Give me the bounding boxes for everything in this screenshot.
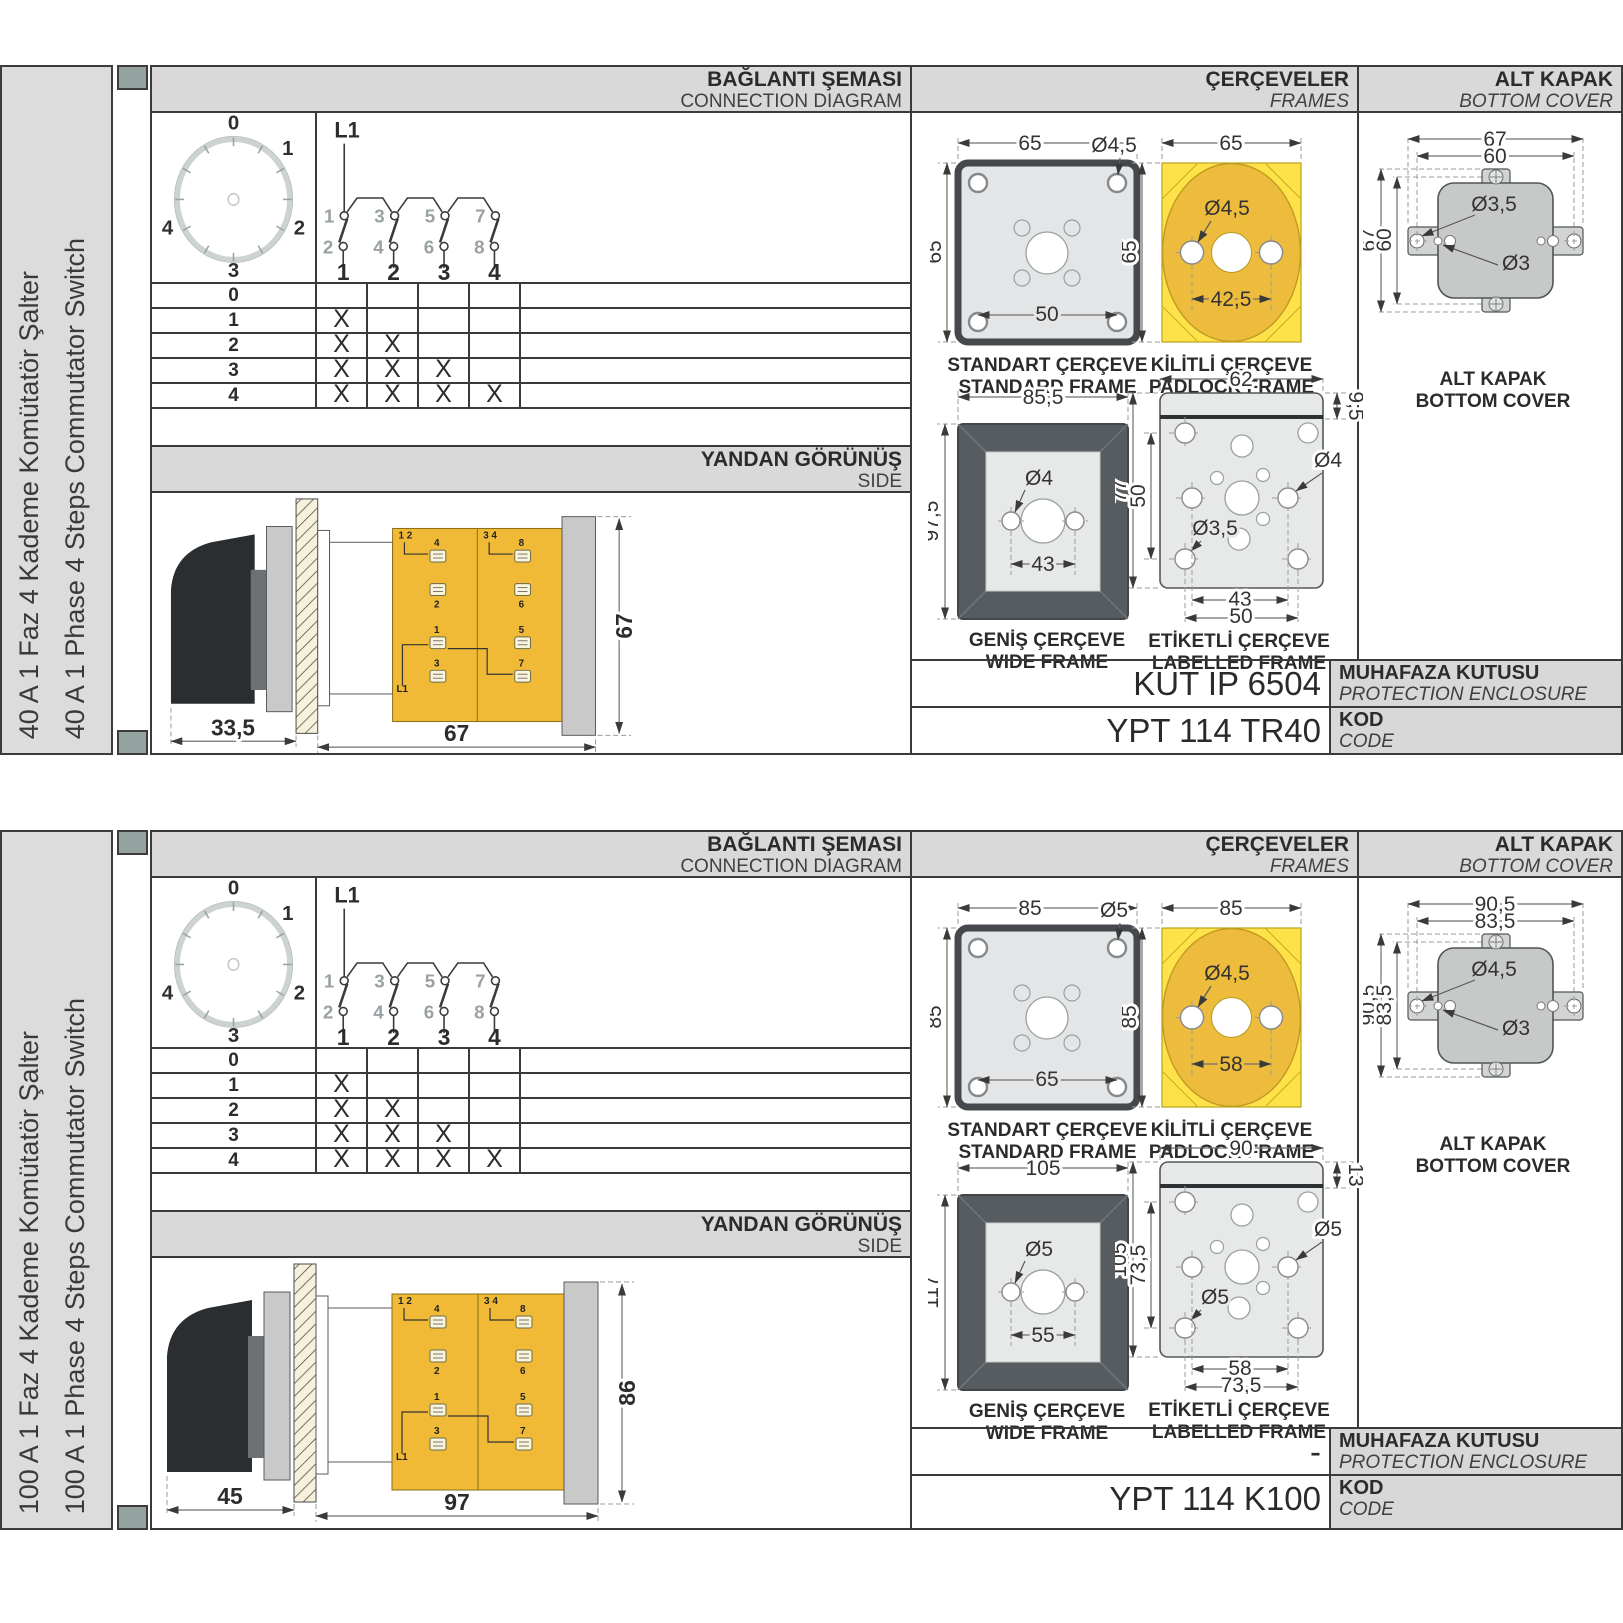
dial-pos-3: 3: [228, 260, 239, 282]
contact-top-3: 3: [374, 971, 384, 992]
line-label: L1: [334, 118, 359, 143]
output-2: 2: [387, 1024, 400, 1047]
dim-hole-spacing: 65: [1035, 1068, 1058, 1091]
dim-inner-height: 83,5: [1373, 985, 1396, 1026]
terminal-label: 4: [434, 538, 440, 549]
connection-column: BAĞLANTI ŞEMASI CONNECTION DIAGRAM: [152, 67, 912, 753]
dim-hole-dia: Ø5: [1025, 1238, 1053, 1261]
terminal-label: 3 4: [484, 1296, 498, 1307]
bottom-cover-svg: 67 60 67 60: [1363, 123, 1623, 363]
mark-cell: [419, 1049, 470, 1072]
dim-frame-width: 62: [1229, 368, 1252, 391]
dim-hole-dia-bottom: Ø3,5: [1192, 517, 1238, 540]
mark-cell: [368, 1074, 419, 1097]
connection-diagram: 0 1 2 3 4 L1: [152, 878, 910, 1049]
step-label: 4: [152, 1149, 317, 1172]
header-title-tr: YANDAN GÖRÜNÜŞ: [152, 1213, 902, 1236]
side-view-drawing: 1 2 3 4 4 8 2 6 1 5 3 7 L1 33,5: [152, 493, 910, 753]
mark-cell: X: [419, 1124, 470, 1147]
dim-hole-dia: Ø4: [1025, 467, 1053, 490]
mark-cell: [470, 1099, 521, 1122]
figure-caption-tr: ETİKETLİ ÇERÇEVE: [1115, 631, 1363, 652]
labelled-frame-svg: 90 13 105 73,5 Ø5 Ø5 58 73,5: [1115, 1132, 1363, 1394]
table-row: 0: [152, 284, 910, 309]
mark-cell: X: [368, 1099, 419, 1122]
terminal-label: 2: [434, 1366, 440, 1377]
bottom-cover-header: ALT KAPAK BOTTOM COVER: [1359, 67, 1621, 113]
step-label: 0: [152, 284, 317, 307]
step-label: 3: [152, 359, 317, 382]
contact-bottom-2: 2: [323, 236, 333, 257]
mark-cell: [419, 284, 470, 307]
mark-cell: X: [368, 359, 419, 382]
label-en: CODE: [1339, 1499, 1621, 1520]
header-title-en: SIDE: [152, 1236, 902, 1257]
spec-rows: - MUHAFAZA KUTUSU PROTECTION ENCLOSURE Y…: [912, 1427, 1621, 1528]
bottom-cover-figure: 90,5 83,5 90,5 83,5: [1363, 888, 1623, 1177]
dim-frame-height: 65: [1122, 240, 1141, 263]
dial-svg: 0 1 2 3 4: [152, 878, 315, 1047]
bottom-cover-column: ALT KAPAK BOTTOM COVER 67 60 67 60: [1359, 67, 1621, 667]
connection-column: BAĞLANTI ŞEMASI CONNECTION DIAGRAM: [152, 832, 912, 1528]
binding-marker-top: [117, 65, 148, 90]
step-label: 4: [152, 384, 317, 407]
mounting-panel-hatch: [296, 499, 318, 733]
dial-pos-0: 0: [228, 878, 239, 900]
figure-caption-tr: ETİKETLİ ÇERÇEVE: [1115, 1400, 1363, 1421]
mark-cell: [470, 1049, 521, 1072]
contact-top-5: 5: [425, 206, 435, 227]
mark-cell: [368, 309, 419, 332]
mounting-panel-hatch: [294, 1264, 316, 1502]
mark-cell: [470, 309, 521, 332]
step-label: 2: [152, 1099, 317, 1122]
header-title-tr: BAĞLANTI ŞEMASI: [152, 68, 902, 91]
enclosure-label: MUHAFAZA KUTUSU PROTECTION ENCLOSURE: [1329, 661, 1621, 706]
dim-frame-width: 85: [1219, 897, 1242, 920]
terminal-label: L1: [396, 1452, 408, 1463]
mark-cell: [368, 284, 419, 307]
dim-handle-depth: 45: [217, 1483, 243, 1509]
labelled-frame-figure: 62 9,5 77 50 Ø4 Ø3,5 43 50: [1115, 363, 1363, 674]
frames-column: ÇERÇEVELER FRAMES 65 Ø4,5: [912, 67, 1359, 667]
connection-diagram: 0 1 2 3 4 L1: [152, 113, 910, 284]
contact-top-3: 3: [374, 206, 384, 227]
header-title-en: CONNECTION DIAGRAM: [152, 856, 902, 877]
contact-top-7: 7: [475, 206, 485, 227]
dim-hole-spacing: 42,5: [1211, 288, 1252, 311]
binding-marker-bottom: [117, 730, 148, 755]
protection-enclosure-row: - MUHAFAZA KUTUSU PROTECTION ENCLOSURE: [912, 1427, 1621, 1474]
dim-spacing-outer: 73,5: [1221, 1374, 1262, 1394]
frames-header: ÇERÇEVELER FRAMES: [912, 67, 1357, 113]
dim-frame-height: 85: [1122, 1005, 1141, 1028]
mark-cell: [470, 284, 521, 307]
enclosure-label: MUHAFAZA KUTUSU PROTECTION ENCLOSURE: [1329, 1429, 1621, 1474]
header-title-en: BOTTOM COVER: [1359, 91, 1613, 112]
label-tr: KOD: [1339, 1477, 1621, 1499]
header-title-en: FRAMES: [912, 91, 1349, 112]
label-tr: MUHAFAZA KUTUSU: [1339, 1430, 1621, 1452]
label-tr: MUHAFAZA KUTUSU: [1339, 662, 1621, 684]
table-row: 2 X X: [152, 1099, 910, 1124]
product-side-label-strip: 100 A 1 Faz 4 Kademe Komütatör Şalter 10…: [0, 830, 113, 1530]
dim-hole-dia-bottom: Ø5: [1201, 1286, 1229, 1309]
dial-pos-2: 2: [294, 982, 305, 1004]
bottom-cover-column: ALT KAPAK BOTTOM COVER 90,5 83,5 90,5 83…: [1359, 832, 1621, 1435]
mark-cell: X: [317, 1124, 368, 1147]
terminal-label: 5: [520, 1392, 526, 1403]
frames-header: ÇERÇEVELER FRAMES: [912, 832, 1357, 878]
binding-marker-top: [117, 830, 148, 855]
dim-frame-width: 65: [1018, 132, 1041, 155]
code-row: YPT 114 TR40 KOD CODE: [912, 706, 1621, 753]
product-name-english: 40 A 1 Phase 4 Steps Commutator Switch: [60, 238, 91, 739]
dim-frame-width: 90: [1229, 1137, 1252, 1160]
terminal-label: 1 2: [399, 530, 413, 541]
terminal-label: 2: [434, 599, 440, 610]
dim-hole-spacing: 43: [1031, 553, 1054, 576]
product-name-english: 100 A 1 Phase 4 Steps Commutator Switch: [60, 998, 91, 1514]
dim-body-depth: 67: [444, 720, 469, 746]
mark-cell: X: [368, 334, 419, 357]
protection-enclosure-row: KUT IP 6504 MUHAFAZA KUTUSU PROTECTION E…: [912, 659, 1621, 706]
step-label: 1: [152, 309, 317, 332]
contact-schematic-drawing: L1 1 3 5 7 2 4: [317, 878, 910, 1047]
contact-schematic-drawing: L1 1 3 5 7 2 4: [317, 113, 910, 282]
header-title-en: CONNECTION DIAGRAM: [152, 91, 902, 112]
code-label: KOD CODE: [1329, 708, 1621, 753]
header-title-tr: YANDAN GÖRÜNÜŞ: [152, 448, 902, 471]
step-label: 2: [152, 334, 317, 357]
output-1: 1: [337, 259, 350, 282]
mark-cell: [470, 359, 521, 382]
mark-cell: X: [317, 359, 368, 382]
mark-cell: [470, 1124, 521, 1147]
dim-frame-height: 85: [930, 1005, 946, 1028]
mark-cell: X: [368, 1149, 419, 1172]
dim-small-hole-dia: Ø3: [1502, 252, 1530, 275]
switch-handle: [167, 1300, 252, 1472]
dim-hole-dia-right: Ø4: [1314, 449, 1342, 472]
side-view-svg: 1 2 3 4 4 8 2 6 1 5 3 7 L1 45: [152, 1258, 712, 1526]
switch-dial-drawing: 0 1 2 3 4: [152, 878, 317, 1047]
dim-frame-height: 117: [928, 1275, 943, 1308]
code-value: YPT 114 TR40: [912, 708, 1329, 753]
dim-frame-height: 97,5: [928, 501, 943, 542]
dim-hole-dia: Ø4,5: [1204, 197, 1250, 220]
header-title-en: SIDE: [152, 471, 902, 492]
datasheet-panel: BAĞLANTI ŞEMASI CONNECTION DIAGRAM: [150, 65, 1623, 755]
bottom-cover-figure: 67 60 67 60: [1363, 123, 1623, 412]
mark-cell: [419, 1099, 470, 1122]
output-3: 3: [438, 1024, 451, 1047]
table-row: 4 X X X X: [152, 384, 910, 409]
contact-bottom-2: 2: [323, 1001, 333, 1022]
dim-frame-height: 65: [930, 240, 946, 263]
mark-cell: X: [368, 1124, 419, 1147]
output-4: 4: [488, 259, 501, 282]
dim-small-hole-dia: Ø3: [1502, 1017, 1530, 1040]
dim-inner-height: 73,5: [1127, 1245, 1150, 1286]
contact-bottom-6: 6: [424, 236, 434, 257]
contact-bottom-8: 8: [474, 1001, 484, 1022]
mark-cell: [368, 1049, 419, 1072]
mark-cell: X: [317, 1149, 368, 1172]
dim-handle-depth: 33,5: [211, 714, 255, 740]
mark-cell: [419, 1074, 470, 1097]
product-name-turkish: 40 A 1 Faz 4 Kademe Komütatör Şalter: [14, 271, 45, 739]
terminal-label: 8: [519, 538, 525, 549]
side-view-svg: 1 2 3 4 4 8 2 6 1 5 3 7 L1 33,5: [152, 493, 712, 757]
padlock-frame-figure: Ø4,5 58 85 85 KİLİTLİ ÇERÇEVE PADLOCK FR…: [1122, 888, 1317, 1163]
contact-top-5: 5: [425, 971, 435, 992]
mark-cell: X: [419, 359, 470, 382]
code-row: YPT 114 K100 KOD CODE: [912, 1474, 1621, 1528]
header-title-tr: ÇERÇEVELER: [912, 68, 1349, 91]
dial-pos-0: 0: [228, 113, 239, 135]
table-row: 3 X X X: [152, 359, 910, 384]
contact-bottom-8: 8: [474, 236, 484, 257]
dim-inner-height: 50: [1127, 484, 1150, 507]
enclosure-value: KUT IP 6504: [912, 661, 1329, 706]
dim-inner-width: 60: [1483, 145, 1506, 168]
binding-marker-bottom: [117, 1505, 148, 1530]
terminal-label: 6: [519, 599, 525, 610]
mark-cell: [317, 1049, 368, 1072]
contact-bottom-4: 4: [373, 1001, 384, 1022]
header-title-tr: ÇERÇEVELER: [912, 833, 1349, 856]
dim-inner-width: 83,5: [1475, 910, 1516, 933]
mark-cell: X: [317, 1099, 368, 1122]
mark-cell: X: [419, 384, 470, 407]
contact-bottom-4: 4: [373, 236, 384, 257]
enclosure-value: -: [912, 1429, 1329, 1474]
header-title-tr: ALT KAPAK: [1359, 68, 1613, 91]
labelled-frame-svg: 62 9,5 77 50 Ø4 Ø3,5 43 50: [1115, 363, 1363, 625]
table-row: 2 X X: [152, 334, 910, 359]
dim-hole-spacing: 55: [1031, 1324, 1054, 1347]
output-2: 2: [387, 259, 400, 282]
dim-body-height: 67: [611, 613, 637, 638]
padlock-frame-svg: Ø4,5 58 85 85: [1122, 888, 1317, 1114]
table-row: 0: [152, 1049, 910, 1074]
side-view-drawing: 1 2 3 4 4 8 2 6 1 5 3 7 L1 45: [152, 1258, 910, 1528]
connection-diagram-header: BAĞLANTI ŞEMASI CONNECTION DIAGRAM: [152, 832, 910, 878]
product-section-40a: 40 A 1 Faz 4 Kademe Komütatör Şalter 40 …: [0, 65, 1623, 755]
dim-hole-dia-right: Ø5: [1314, 1218, 1342, 1241]
mark-cell: [419, 309, 470, 332]
mark-cell: [470, 334, 521, 357]
terminal-label: 3 4: [483, 530, 497, 541]
mark-cell: [470, 1074, 521, 1097]
dim-body-depth: 97: [444, 1489, 470, 1515]
terminal-label: 1: [434, 1392, 440, 1403]
terminal-label: 1: [434, 625, 440, 636]
schematic-svg: L1 1 3 5 7 2 4: [317, 878, 747, 1047]
terminal-label: 6: [520, 1366, 526, 1377]
terminal-label: 7: [520, 1426, 526, 1437]
dim-frame-width: 65: [1219, 132, 1242, 155]
mark-cell: X: [470, 384, 521, 407]
dim-frame-width: 85: [1018, 897, 1041, 920]
dial-pos-1: 1: [282, 903, 293, 925]
product-side-label-strip: 40 A 1 Faz 4 Kademe Komütatör Şalter 40 …: [0, 65, 113, 755]
dial-pos-1: 1: [282, 138, 293, 160]
dim-tab-hole-dia: Ø4,5: [1471, 958, 1517, 981]
dim-hole-dia: Ø4,5: [1204, 962, 1250, 985]
header-title-tr: BAĞLANTI ŞEMASI: [152, 833, 902, 856]
dim-tab-hole-dia: Ø3,5: [1471, 193, 1517, 216]
terminal-label: 7: [519, 658, 525, 669]
bottom-cover-svg: 90,5 83,5 90,5 83,5: [1363, 888, 1623, 1128]
figure-caption-tr: ALT KAPAK: [1363, 369, 1623, 390]
figure-caption-tr: ALT KAPAK: [1363, 1134, 1623, 1155]
frames-column: ÇERÇEVELER FRAMES 85 Ø5: [912, 832, 1359, 1435]
dim-inner-height: 60: [1373, 228, 1396, 251]
contact-top-7: 7: [475, 971, 485, 992]
step-label: 0: [152, 1049, 317, 1072]
mark-cell: X: [317, 309, 368, 332]
terminal-label: 3: [434, 658, 440, 669]
label-tr: KOD: [1339, 709, 1621, 731]
padlock-frame-svg: Ø4,5 42,5 65 65: [1122, 123, 1317, 349]
label-en: PROTECTION ENCLOSURE: [1339, 1452, 1621, 1473]
mark-cell: X: [419, 1149, 470, 1172]
schematic-svg: L1 1 3 5 7 2 4: [317, 113, 747, 282]
switch-dial-drawing: 0 1 2 3 4: [152, 113, 317, 282]
terminal-label: 8: [520, 1304, 526, 1315]
dial-pos-4: 4: [162, 217, 174, 239]
mark-cell: X: [470, 1149, 521, 1172]
connection-diagram-header: BAĞLANTI ŞEMASI CONNECTION DIAGRAM: [152, 67, 910, 113]
table-row: 1 X: [152, 1074, 910, 1099]
output-3: 3: [438, 259, 451, 282]
dial-pos-4: 4: [162, 982, 174, 1004]
padlock-frame-figure: Ø4,5 42,5 65 65 KİLİTLİ ÇERÇEVE PADLOCK …: [1122, 123, 1317, 398]
mark-cell: X: [317, 1074, 368, 1097]
product-section-100a: 100 A 1 Faz 4 Kademe Komütatör Şalter 10…: [0, 830, 1623, 1530]
code-value: YPT 114 K100: [912, 1476, 1329, 1528]
side-view-header: YANDAN GÖRÜNÜŞ SIDE: [152, 445, 910, 493]
product-name-turkish: 100 A 1 Faz 4 Kademe Komütatör Şalter: [14, 1031, 45, 1514]
header-title-en: FRAMES: [912, 856, 1349, 877]
datasheet-panel: BAĞLANTI ŞEMASI CONNECTION DIAGRAM: [150, 830, 1623, 1530]
label-en: PROTECTION ENCLOSURE: [1339, 684, 1621, 705]
switch-handle: [171, 534, 255, 703]
terminal-label: 3: [434, 1426, 440, 1437]
step-contact-table: 0 1 X 2 X X: [152, 284, 910, 409]
contact-top-1: 1: [324, 206, 334, 227]
line-label: L1: [334, 883, 359, 908]
mark-cell: X: [317, 334, 368, 357]
mark-cell: [317, 284, 368, 307]
dim-frame-width: 105: [1025, 1157, 1060, 1180]
mark-cell: [419, 334, 470, 357]
dim-spacing-outer: 50: [1229, 605, 1252, 625]
step-contact-table: 0 1 X 2 X X: [152, 1049, 910, 1174]
table-row: 1 X: [152, 309, 910, 334]
mark-cell: X: [368, 384, 419, 407]
label-en: CODE: [1339, 731, 1621, 752]
figure-caption-en: BOTTOM COVER: [1363, 1156, 1623, 1177]
code-label: KOD CODE: [1329, 1476, 1621, 1528]
mark-cell: X: [317, 384, 368, 407]
header-title-en: BOTTOM COVER: [1359, 856, 1613, 877]
dial-pos-3: 3: [228, 1025, 239, 1047]
step-label: 3: [152, 1124, 317, 1147]
figure-caption-en: BOTTOM COVER: [1363, 391, 1623, 412]
dim-hole-spacing: 50: [1035, 303, 1058, 326]
side-view-header: YANDAN GÖRÜNÜŞ SIDE: [152, 1210, 910, 1258]
dim-body-height: 86: [614, 1380, 640, 1406]
dial-pos-2: 2: [294, 217, 305, 239]
bottom-cover-header: ALT KAPAK BOTTOM COVER: [1359, 832, 1621, 878]
header-title-tr: ALT KAPAK: [1359, 833, 1613, 856]
dim-frame-width: 85,5: [1023, 386, 1064, 409]
spec-rows: KUT IP 6504 MUHAFAZA KUTUSU PROTECTION E…: [912, 659, 1621, 753]
dial-svg: 0 1 2 3 4: [152, 113, 315, 282]
step-label: 1: [152, 1074, 317, 1097]
terminal-label: 4: [434, 1304, 440, 1315]
contact-top-1: 1: [324, 971, 334, 992]
table-row: 3 X X X: [152, 1124, 910, 1149]
dim-hole-spacing: 58: [1219, 1053, 1242, 1076]
output-4: 4: [488, 1024, 501, 1047]
terminal-label: 1 2: [398, 1296, 412, 1307]
table-row: 4 X X X X: [152, 1149, 910, 1174]
labelled-frame-figure: 90 13 105 73,5 Ø5 Ø5 58 73,5: [1115, 1132, 1363, 1443]
output-1: 1: [337, 1024, 350, 1047]
contact-bottom-6: 6: [424, 1001, 434, 1022]
terminal-label: L1: [397, 684, 409, 695]
terminal-label: 5: [519, 625, 525, 636]
